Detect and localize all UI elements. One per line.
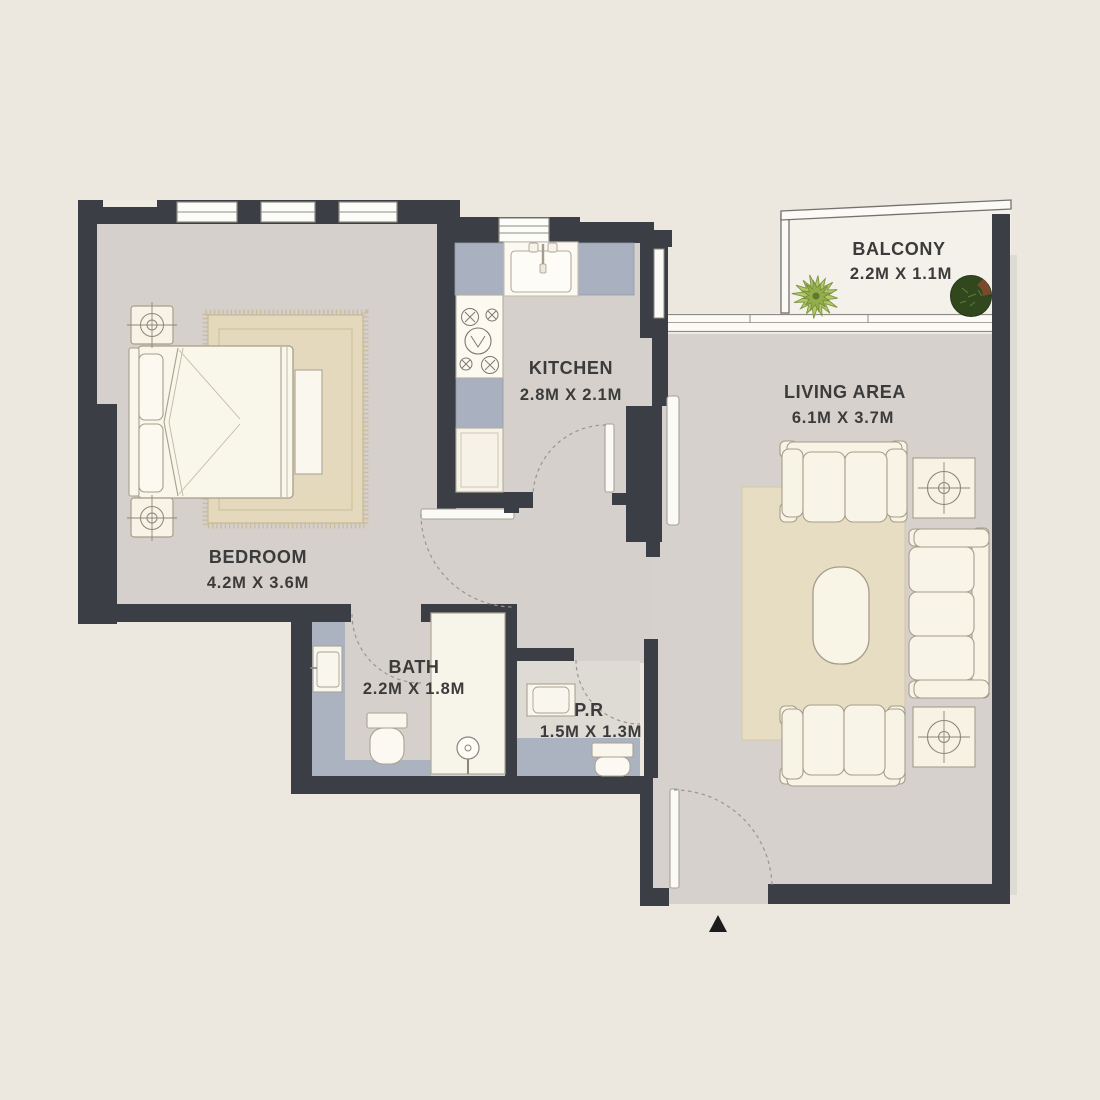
svg-text:4.2M X 3.6M: 4.2M X 3.6M bbox=[207, 574, 309, 592]
svg-text:BEDROOM: BEDROOM bbox=[209, 547, 307, 567]
svg-text:BALCONY: BALCONY bbox=[852, 239, 945, 259]
svg-text:LIVING AREA: LIVING AREA bbox=[784, 382, 906, 402]
svg-text:1.5M X 1.3M: 1.5M X 1.3M bbox=[540, 723, 642, 741]
svg-text:2.2M X 1.1M: 2.2M X 1.1M bbox=[850, 265, 952, 283]
svg-text:2.8M X 2.1M: 2.8M X 2.1M bbox=[520, 386, 622, 404]
svg-text:2.2M X 1.8M: 2.2M X 1.8M bbox=[363, 680, 465, 698]
svg-text:6.1M X 3.7M: 6.1M X 3.7M bbox=[792, 409, 894, 427]
svg-text:P.R: P.R bbox=[574, 700, 604, 720]
svg-text:BATH: BATH bbox=[388, 657, 439, 677]
svg-text:KITCHEN: KITCHEN bbox=[529, 358, 613, 378]
